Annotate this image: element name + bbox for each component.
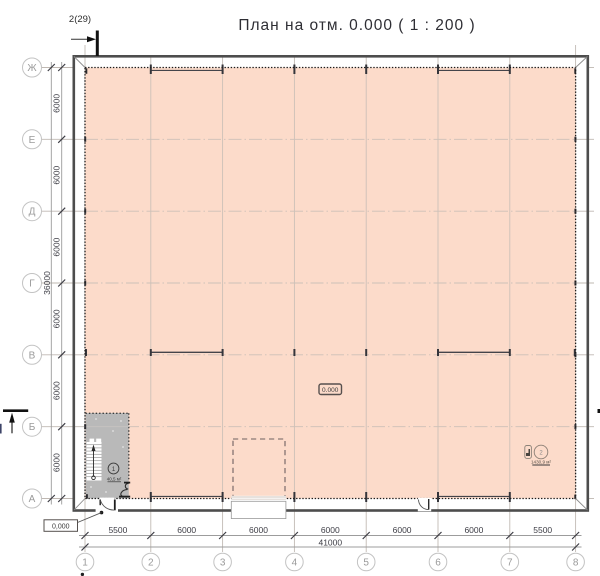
svg-text:40,5 м²: 40,5 м² bbox=[107, 477, 122, 482]
svg-text:6000: 6000 bbox=[52, 94, 62, 113]
svg-text:Ж: Ж bbox=[27, 63, 37, 74]
svg-text:1430,9 м²: 1430,9 м² bbox=[531, 460, 551, 465]
svg-text:2(29): 2(29) bbox=[69, 14, 91, 25]
svg-text:А: А bbox=[29, 494, 36, 505]
svg-text:6000: 6000 bbox=[464, 525, 483, 535]
svg-text:5500: 5500 bbox=[533, 525, 552, 535]
svg-text:6000: 6000 bbox=[52, 381, 62, 400]
svg-text:В: В bbox=[29, 350, 36, 361]
svg-text:6000: 6000 bbox=[177, 525, 196, 535]
svg-text:41000: 41000 bbox=[318, 537, 342, 547]
svg-text:6000: 6000 bbox=[393, 525, 412, 535]
svg-text:0.000: 0.000 bbox=[322, 387, 339, 394]
svg-text:6000: 6000 bbox=[52, 309, 62, 328]
svg-text:3: 3 bbox=[220, 558, 226, 569]
svg-text:36000: 36000 bbox=[42, 271, 52, 295]
svg-text:4: 4 bbox=[292, 558, 298, 569]
svg-text:1: 1 bbox=[82, 558, 88, 569]
svg-text:6: 6 bbox=[435, 558, 441, 569]
svg-text:6000: 6000 bbox=[52, 165, 62, 184]
svg-text:0,000: 0,000 bbox=[52, 523, 70, 530]
svg-text:5: 5 bbox=[363, 558, 369, 569]
svg-text:7: 7 bbox=[507, 558, 513, 569]
svg-text:6000: 6000 bbox=[52, 237, 62, 256]
svg-text:6000: 6000 bbox=[249, 525, 268, 535]
svg-text:План на отм. 0.000 ( 1 : 200 ): План на отм. 0.000 ( 1 : 200 ) bbox=[238, 17, 475, 34]
svg-text:2: 2 bbox=[148, 558, 154, 569]
svg-text:Г: Г bbox=[29, 279, 35, 290]
svg-text:Д: Д bbox=[29, 207, 36, 218]
svg-text:6000: 6000 bbox=[52, 453, 62, 472]
svg-text:6000: 6000 bbox=[321, 525, 340, 535]
svg-text:Б: Б bbox=[29, 422, 36, 433]
svg-text:8: 8 bbox=[573, 558, 579, 569]
svg-text:Е: Е bbox=[29, 135, 36, 146]
svg-text:5500: 5500 bbox=[108, 525, 127, 535]
